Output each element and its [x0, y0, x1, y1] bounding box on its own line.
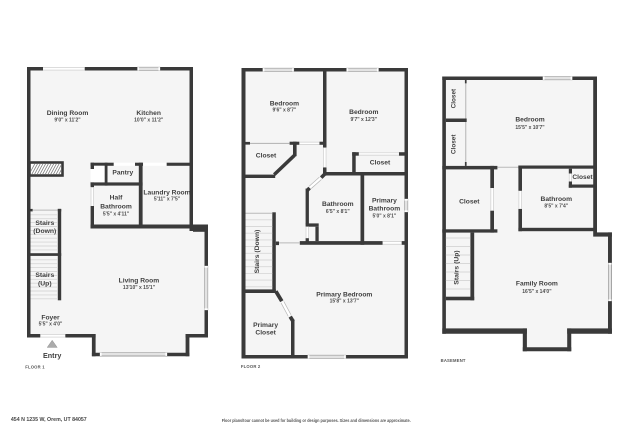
svg-text:Primary Bedroom: Primary Bedroom — [316, 291, 372, 298]
svg-text:Family Room: Family Room — [516, 281, 558, 288]
svg-text:Pantry: Pantry — [112, 170, 133, 177]
svg-text:16'5" x 14'0": 16'5" x 14'0" — [522, 289, 552, 295]
svg-text:FLOOR 1: FLOOR 1 — [25, 365, 45, 370]
svg-text:Bathroom: Bathroom — [369, 205, 401, 212]
svg-text:454 N 1235 W, Orem, UT 84057: 454 N 1235 W, Orem, UT 84057 — [11, 417, 87, 423]
svg-text:Bedroom: Bedroom — [270, 100, 299, 107]
svg-text:Laundry Room: Laundry Room — [143, 190, 190, 197]
svg-text:5'5" x 4'11": 5'5" x 4'11" — [103, 212, 130, 218]
svg-text:Entry: Entry — [43, 351, 61, 360]
svg-text:Closet: Closet — [256, 153, 277, 160]
svg-text:Stairs (Up): Stairs (Up) — [453, 250, 460, 284]
svg-text:9'6" x 8'7": 9'6" x 8'7" — [272, 108, 296, 114]
svg-text:Kitchen: Kitchen — [136, 110, 161, 117]
svg-text:Closet: Closet — [450, 88, 457, 108]
svg-text:(Down): (Down) — [33, 228, 56, 235]
svg-text:5'5" x 4'0": 5'5" x 4'0" — [39, 321, 63, 327]
svg-text:Closet: Closet — [450, 134, 457, 154]
svg-text:Stairs: Stairs — [35, 220, 54, 227]
svg-text:(Up): (Up) — [38, 280, 52, 287]
svg-text:Bathroom: Bathroom — [541, 196, 573, 203]
svg-text:Stairs: Stairs — [35, 272, 54, 279]
svg-text:Closet: Closet — [459, 199, 480, 206]
svg-text:9'0" x 11'2": 9'0" x 11'2" — [54, 117, 81, 123]
svg-text:Closet: Closet — [572, 174, 593, 181]
svg-text:Bedroom: Bedroom — [349, 109, 378, 116]
svg-text:15'5" x 10'7": 15'5" x 10'7" — [515, 125, 545, 131]
svg-text:Primary: Primary — [253, 322, 278, 329]
svg-text:8'5" x 7'4": 8'5" x 7'4" — [544, 204, 568, 210]
svg-text:Bedroom: Bedroom — [515, 117, 544, 124]
svg-text:Half: Half — [110, 195, 123, 202]
svg-text:Bathroom: Bathroom — [100, 204, 132, 211]
svg-text:Primary: Primary — [372, 197, 397, 204]
svg-text:Closet: Closet — [255, 330, 276, 337]
svg-text:5'11" x 7'5": 5'11" x 7'5" — [154, 197, 181, 203]
svg-text:Dining Room: Dining Room — [47, 110, 89, 117]
svg-text:Closet: Closet — [370, 160, 391, 167]
svg-text:10'0" x 11'2": 10'0" x 11'2" — [134, 117, 164, 123]
svg-text:FLOOR 2: FLOOR 2 — [241, 364, 261, 369]
svg-text:9'7" x 12'3": 9'7" x 12'3" — [351, 117, 378, 123]
svg-text:BASEMENT: BASEMENT — [441, 358, 466, 363]
svg-text:Bathroom: Bathroom — [322, 201, 354, 208]
svg-text:5'0" x 8'1": 5'0" x 8'1" — [372, 214, 396, 220]
svg-text:Stairs (Down): Stairs (Down) — [254, 230, 261, 274]
svg-text:6'5" x 8'1": 6'5" x 8'1" — [326, 209, 350, 215]
svg-text:15'8" x 13'7": 15'8" x 13'7" — [330, 299, 360, 305]
svg-text:Floor plans/tour cannot be use: Floor plans/tour cannot be used for buil… — [222, 418, 411, 423]
svg-text:13'10" x 15'1": 13'10" x 15'1" — [123, 285, 156, 291]
svg-text:Living Room: Living Room — [119, 277, 160, 284]
